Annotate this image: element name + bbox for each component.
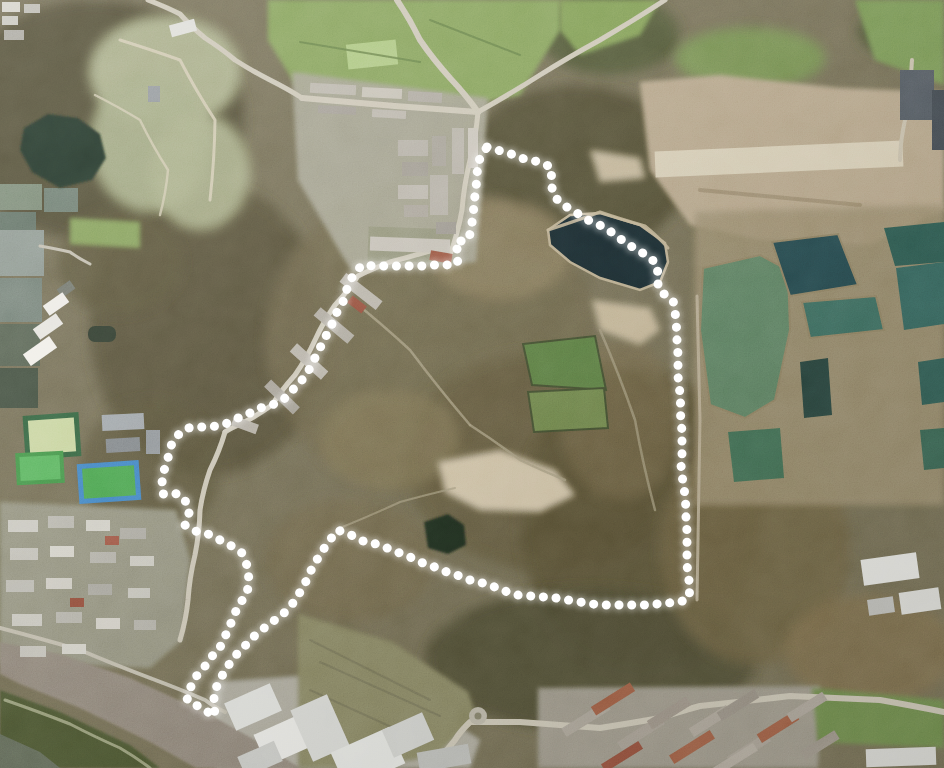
aerial-photo-map (0, 0, 944, 768)
shade-overlay (0, 0, 944, 768)
aerial-photo-svg (0, 0, 944, 768)
